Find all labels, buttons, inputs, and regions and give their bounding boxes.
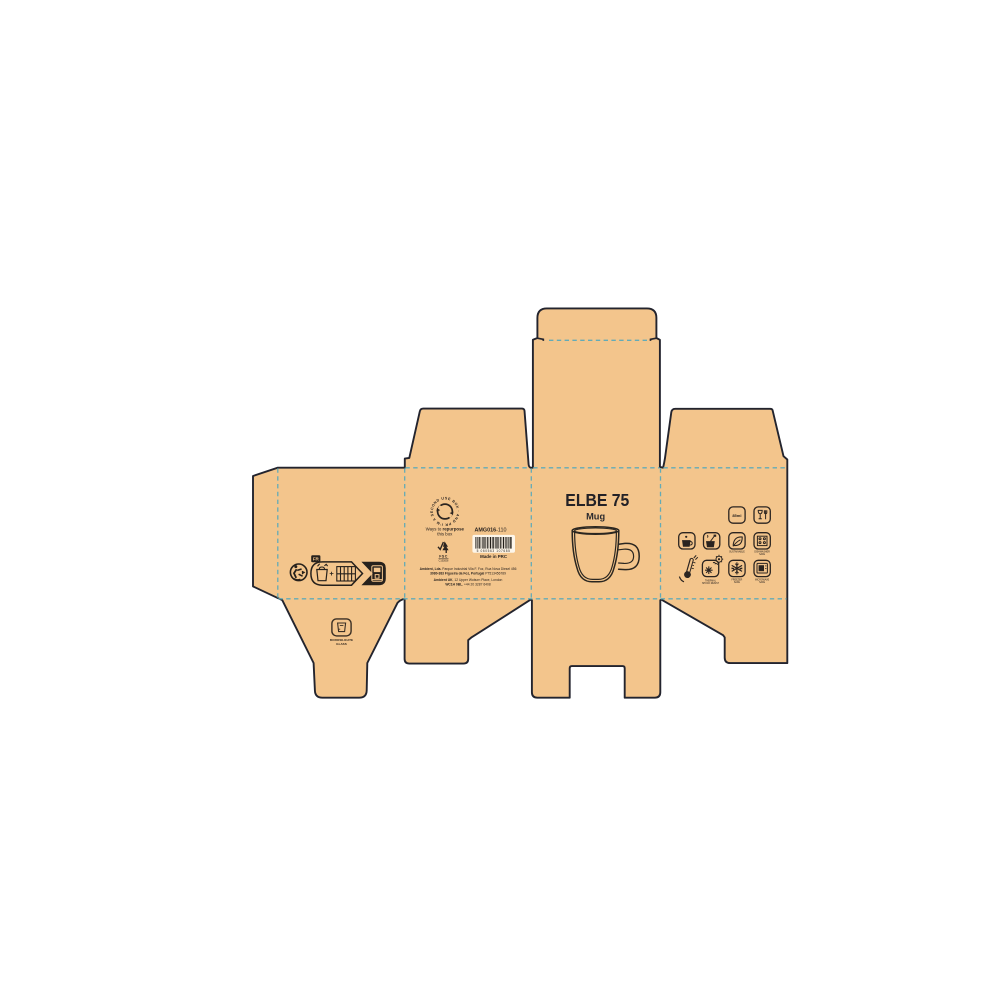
svg-text:SHOCK RESIST: SHOCK RESIST [702,583,720,585]
svg-text:+: + [329,569,334,578]
svg-text:AMG016-110: AMG016-110 [475,527,507,533]
svg-text:SUSTAINABLE: SUSTAINABLE [729,551,745,554]
svg-text:SAFE: SAFE [734,581,740,584]
svg-text:WC1H 0BL, +44 20 3287 6408: WC1H 0BL, +44 20 3287 6408 [445,583,491,587]
svg-text:FR: FR [313,557,320,562]
svg-text:3080-383 Figueira da Foz, Port: 3080-383 Figueira da Foz, Portugal PT513… [430,571,506,575]
svg-text:85ml: 85ml [732,513,741,518]
svg-text:THERMAL: THERMAL [705,580,717,583]
svg-text:ELBE 75: ELBE 75 [565,490,629,510]
svg-text:Ambient UK, 12 Upper Woburn Pl: Ambient UK, 12 Upper Woburn Place, Londo… [434,578,503,582]
svg-text:SAFE: SAFE [759,581,765,584]
svg-text:GLASS: GLASS [336,642,347,646]
svg-text:Made in PRC: Made in PRC [480,554,508,559]
svg-text:Ambient, Lda. Parque Industria: Ambient, Lda. Parque Industrial Vila F. … [420,567,517,571]
svg-text:this box: this box [437,532,453,537]
svg-text:FSC: FSC [439,555,447,559]
svg-text:5 060563 107685: 5 060563 107685 [477,549,511,553]
svg-text:SAFE: SAFE [759,553,765,556]
svg-text:C153828: C153828 [439,560,449,563]
svg-text:MICROWAVE: MICROWAVE [755,578,770,581]
svg-text:Mug: Mug [586,512,605,522]
svg-text:DISHWASHER: DISHWASHER [754,550,770,553]
